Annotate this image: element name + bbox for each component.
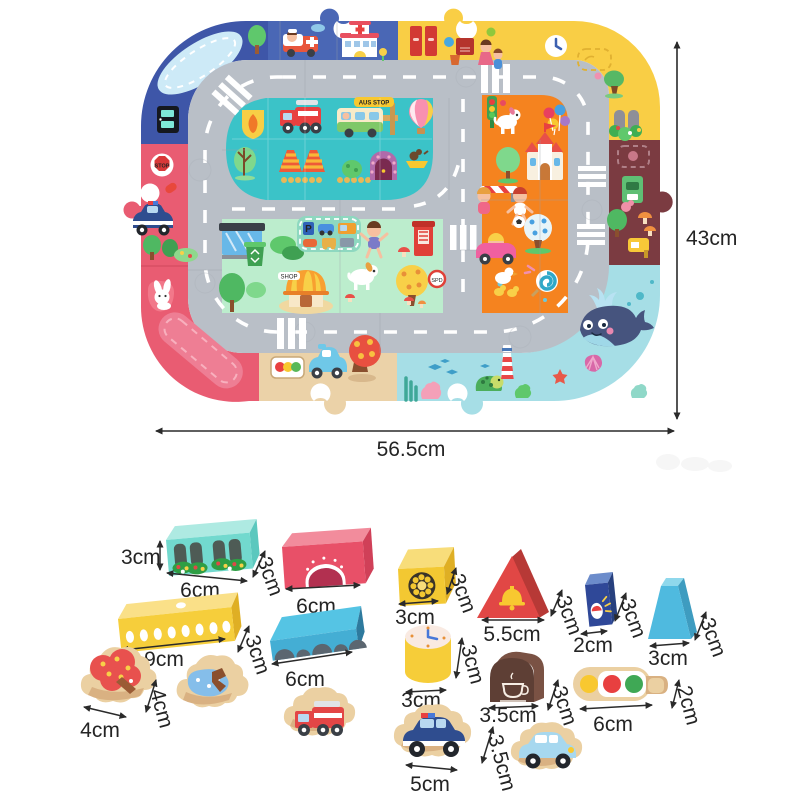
svg-text:6cm: 6cm [285, 668, 325, 691]
svg-text:5cm: 5cm [410, 773, 450, 796]
svg-text:3cm: 3cm [551, 593, 586, 638]
svg-text:AUS STOP: AUS STOP [359, 101, 390, 107]
svg-text:3cm: 3cm [456, 642, 488, 686]
svg-text:3cm: 3cm [615, 596, 650, 641]
svg-text:56.5cm: 56.5cm [377, 438, 446, 461]
svg-text:3.5cm: 3.5cm [479, 704, 536, 727]
svg-text:4cm: 4cm [145, 686, 177, 730]
svg-text:5.5cm: 5.5cm [483, 623, 540, 646]
svg-text:3cm: 3cm [648, 647, 688, 670]
svg-text:3cm: 3cm [121, 546, 161, 569]
svg-text:3cm: 3cm [240, 632, 274, 677]
svg-text:3.5cm: 3.5cm [483, 732, 520, 793]
svg-text:2cm: 2cm [573, 634, 613, 657]
svg-text:43cm: 43cm [686, 227, 737, 250]
svg-text:P: P [305, 224, 312, 235]
svg-text:9cm: 9cm [144, 648, 184, 671]
svg-text:STOP: STOP [155, 164, 170, 170]
svg-text:4cm: 4cm [80, 719, 120, 742]
svg-text:3cm: 3cm [252, 554, 287, 599]
svg-text:SHOP: SHOP [280, 275, 297, 281]
svg-text:SPD: SPD [431, 278, 442, 284]
svg-text:3cm: 3cm [695, 615, 730, 660]
svg-text:2cm: 2cm [672, 683, 704, 727]
svg-text:6cm: 6cm [593, 713, 633, 736]
